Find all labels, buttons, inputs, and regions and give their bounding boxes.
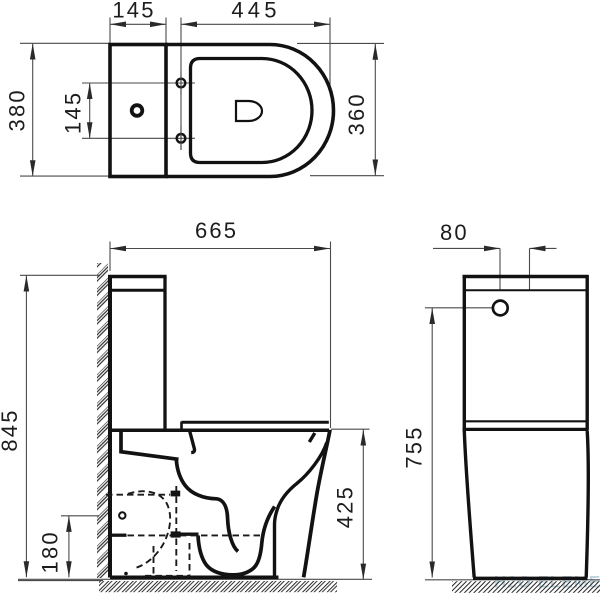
svg-text:755: 755 — [401, 425, 426, 468]
svg-text:425: 425 — [333, 485, 358, 528]
svg-text:445: 445 — [231, 0, 280, 23]
svg-text:380: 380 — [5, 88, 30, 131]
svg-text:845: 845 — [0, 408, 22, 451]
svg-text:80: 80 — [440, 220, 469, 245]
svg-text:145: 145 — [61, 91, 86, 134]
svg-text:180: 180 — [37, 530, 62, 573]
svg-text:360: 360 — [344, 92, 369, 135]
svg-text:145: 145 — [112, 0, 155, 23]
svg-text:665: 665 — [195, 218, 238, 243]
